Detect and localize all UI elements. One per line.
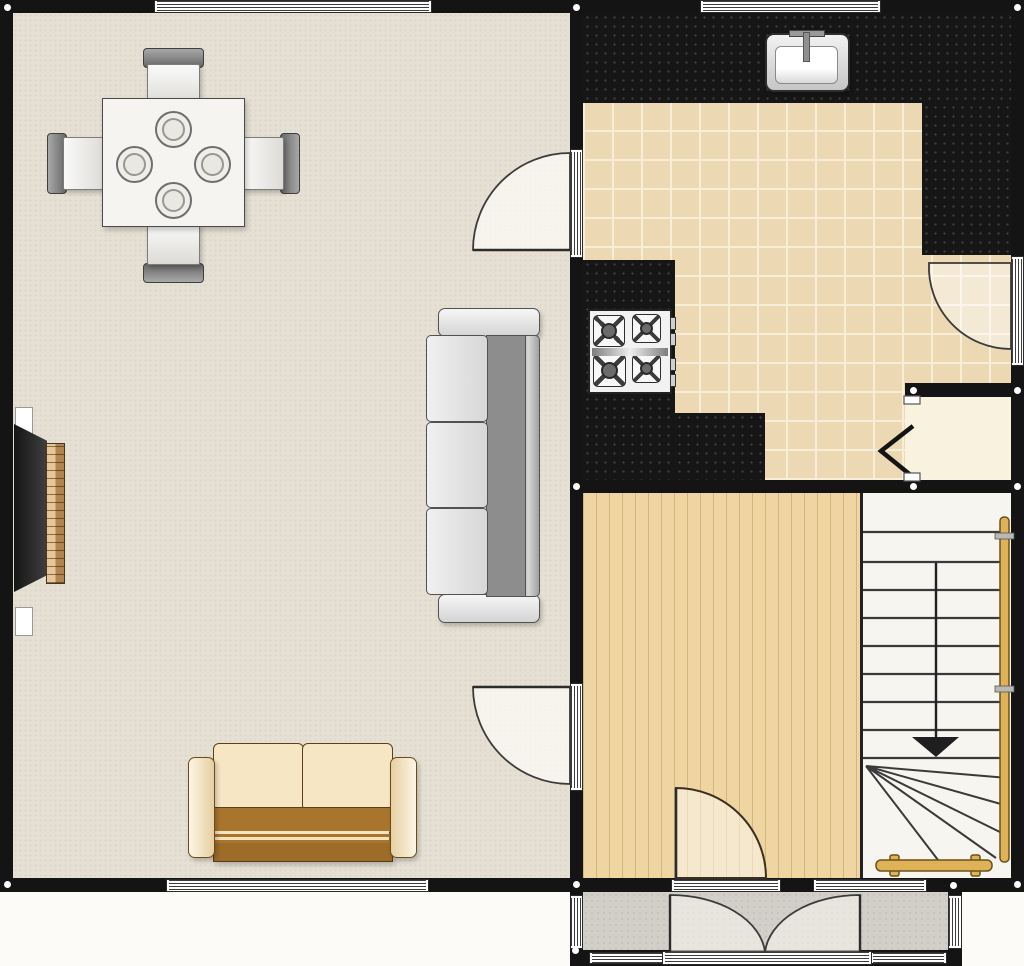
wall-junction-dot: [4, 4, 11, 11]
wall-left: [0, 0, 13, 892]
living-top-window: [155, 1, 431, 12]
wall-closet-stub: [905, 383, 1024, 397]
dining-chair-west-seat: [63, 137, 105, 190]
wall-junction-dot: [1014, 387, 1021, 394]
loveseat-back-cushion-left: [213, 743, 304, 808]
sofa-cushion: [426, 508, 488, 595]
porch-bottom-left-window: [590, 953, 666, 963]
loveseat-armrest-right: [390, 757, 417, 858]
wall-junction-dot: [573, 483, 580, 490]
hall-bottom-window: [814, 880, 926, 891]
sofa-cushion: [426, 335, 488, 422]
porch-double-door-threshold: [663, 952, 871, 964]
porch-right-window: [949, 896, 961, 948]
stove-knob: [670, 358, 676, 371]
sofa-armrest-top: [438, 308, 540, 337]
closet-floor: [905, 397, 1011, 480]
wall-junction-dot: [572, 947, 579, 954]
wall-junction-dot: [4, 881, 11, 888]
piano-keyboard: [46, 443, 65, 584]
wall-right: [1011, 0, 1024, 892]
stove-burner-top-left: [593, 315, 625, 347]
stove-knob: [670, 317, 676, 330]
stove-burner-bottom-left: [593, 354, 626, 387]
porch-left-window: [571, 896, 582, 948]
sink-faucet-spout: [803, 32, 810, 62]
stove-knob: [670, 374, 676, 387]
wall-junction-dot: [573, 881, 580, 888]
wall-kitchen-hall-divider: [570, 480, 1024, 493]
wall-junction-dot: [1014, 483, 1021, 490]
stove-burner-bottom-right: [632, 354, 661, 383]
piano-body: [14, 424, 47, 592]
kitchen-counter-bottom: [675, 413, 765, 480]
sofa-armrest-bottom: [438, 594, 540, 623]
wall-junction-dot: [1014, 4, 1021, 11]
place-setting-west: [116, 146, 153, 183]
loveseat-back-cushion-right: [302, 743, 393, 808]
sofa-cushion: [426, 422, 488, 509]
stove-burner-top-right: [632, 314, 661, 343]
dining-chair-south-seat: [147, 223, 200, 265]
wall-junction-dot: [910, 387, 917, 394]
living-hall-door-opening: [571, 684, 582, 790]
loveseat-seat-front: [213, 805, 393, 833]
stove: [588, 309, 672, 394]
loveseat-skirt: [215, 831, 389, 843]
sofa-backrest: [486, 335, 526, 597]
place-setting-south: [155, 182, 192, 219]
porch-bottom-right-window: [871, 953, 946, 963]
loveseat-armrest-left: [188, 757, 215, 858]
dining-chair-east-seat: [242, 137, 284, 190]
stove-knob: [670, 333, 676, 346]
porch-floor: [583, 892, 948, 950]
wall-junction-dot: [910, 483, 917, 490]
living-kitchen-door-opening: [571, 150, 582, 257]
stove-center-trim: [592, 348, 668, 356]
piano-end-block-bottom: [15, 607, 33, 636]
wall-junction-dot: [573, 4, 580, 11]
floor-plan: [0, 0, 1024, 966]
kitchen-top-window: [701, 1, 880, 12]
front-door-threshold: [672, 880, 780, 891]
hallway-wood-floor: [583, 493, 863, 878]
living-bottom-window: [167, 880, 428, 891]
kitchen-sink: [765, 33, 850, 92]
sofa-seat-cushions: [426, 335, 488, 595]
back-door-opening: [1012, 257, 1023, 365]
place-setting-north: [155, 111, 192, 148]
dining-chair-south-back: [143, 263, 204, 283]
staircase-floor: [860, 493, 1014, 878]
place-setting-east: [194, 146, 231, 183]
wall-junction-dot: [1014, 881, 1021, 888]
kitchen-counter-right: [922, 103, 1011, 255]
wall-junction-dot: [950, 882, 957, 889]
